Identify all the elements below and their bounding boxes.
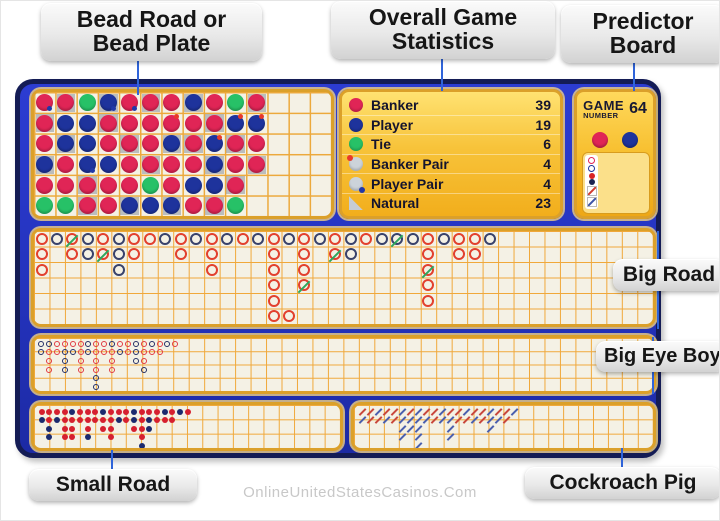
big-eye-player-circle	[46, 341, 52, 347]
small-road-banker-dot	[139, 417, 145, 423]
bead-banker	[206, 94, 223, 111]
cockroach-banker-slash	[407, 408, 415, 416]
big-eye-banker-circle	[93, 349, 99, 355]
overall-stats-label-line1: Overall Game	[339, 6, 547, 30]
banker-pair-icon	[349, 157, 363, 171]
tie-count: 6	[543, 136, 551, 152]
big-eye-banker-circle	[117, 341, 123, 347]
small-road-banker-dot	[62, 409, 68, 415]
cockroach-player-slash	[407, 425, 415, 433]
small-road-banker-dot	[85, 417, 91, 423]
small-road-player-dot	[146, 426, 152, 432]
big-road-banker-circle	[128, 233, 140, 245]
big-eye-banker-circle	[93, 367, 99, 373]
big-eye-banker-circle	[101, 349, 107, 355]
big-road-player-circle	[82, 233, 94, 245]
cockroach-banker-slash	[503, 416, 511, 424]
bead-road-label: Bead Road or Bead Plate	[41, 3, 262, 61]
bead-banker	[36, 177, 53, 194]
small-road-player-dot	[131, 409, 137, 415]
big-road-player-circle	[314, 233, 326, 245]
big-eye-banker-circle	[101, 341, 107, 347]
big-road-player-circle	[407, 233, 419, 245]
tie-slash	[422, 265, 435, 278]
big-road-banker-circle	[175, 233, 187, 245]
banker-count: 39	[535, 97, 551, 113]
banker-outcome-icon	[592, 132, 608, 148]
cockroach-player-slash	[399, 416, 407, 424]
big-road-banker-circle	[422, 233, 434, 245]
big-eye-player-circle	[149, 341, 155, 347]
small-road-banker-dot	[69, 434, 75, 440]
bead-banker	[163, 177, 180, 194]
big-road-player-circle	[345, 248, 357, 260]
bead-banker	[36, 115, 53, 132]
bead-player	[185, 94, 202, 111]
small-road-banker-dot	[123, 417, 129, 423]
big-eye-player-circle	[109, 341, 115, 347]
big-road-banker-circle	[298, 248, 310, 260]
big-eye-banker-circle	[62, 341, 68, 347]
small-road-banker-dot	[92, 417, 98, 423]
big-eye-banker-circle	[141, 358, 147, 364]
cockroach-banker-slash	[391, 408, 399, 416]
big-eye-player-circle	[133, 349, 139, 355]
small-road-dots	[34, 405, 340, 448]
small-road-banker-dot	[100, 426, 106, 432]
cockroach-player-slash	[487, 416, 495, 424]
big-eye-boy-circles	[34, 338, 653, 391]
baccarat-scoreboard-infographic: Bead Road or Bead Plate Overall Game Sta…	[0, 0, 720, 521]
big-road-banker-circle	[97, 248, 109, 260]
big-road-banker-circle	[469, 233, 481, 245]
connector-bead	[137, 59, 139, 95]
bead-banker	[227, 177, 244, 194]
big-road-banker-circle	[237, 233, 249, 245]
player-icon	[349, 118, 363, 132]
bead-player	[79, 115, 96, 132]
connector-predictor	[633, 59, 635, 91]
big-eye-banker-circle	[149, 349, 155, 355]
big-road-player-circle	[159, 233, 171, 245]
cockroach-player-slash	[511, 408, 519, 416]
small-road-banker-dot	[100, 417, 106, 423]
banker-pair-count: 4	[543, 156, 551, 172]
small-road-banker-dot	[62, 417, 68, 423]
small-road-player-dot	[162, 409, 168, 415]
small-road-player-dot	[39, 417, 45, 423]
tie-label: Tie	[371, 136, 535, 152]
bead-plate-beads	[34, 92, 331, 216]
bead-banker	[185, 135, 202, 152]
bead-banker	[79, 197, 96, 214]
cockroach-banker-slash	[383, 408, 391, 416]
bead-tie	[57, 197, 74, 214]
big-road-panel	[31, 228, 656, 327]
game-number-value: 64	[629, 100, 647, 118]
bead-banker	[248, 94, 265, 111]
bead-plate-panel	[31, 89, 334, 219]
big-road-banker-circle	[268, 248, 280, 260]
big-road-banker-circle	[469, 248, 481, 260]
stats-row-player: Player 19	[342, 115, 560, 135]
tie-slash	[97, 250, 110, 263]
big-eye-banker-circle	[78, 341, 84, 347]
stats-row-banker-pair: Banker Pair 4	[342, 154, 560, 174]
big-eye-banker-circle	[93, 341, 99, 347]
cockroach-pig-panel	[351, 402, 656, 451]
cockroach-banker-slash	[479, 408, 487, 416]
bead-player	[206, 156, 223, 173]
natural-count: 23	[535, 195, 551, 211]
bead-banker	[206, 197, 223, 214]
predictor-board-label-line1: Predictor	[569, 10, 717, 34]
small-road-banker-dot	[162, 417, 168, 423]
big-eye-banker-circle	[141, 341, 147, 347]
big-road-banker-circle	[329, 233, 341, 245]
natural-icon	[349, 196, 363, 210]
small-road-banker-dot	[85, 426, 91, 432]
small-road-banker-dot	[123, 409, 129, 415]
small-road-banker-dot	[139, 434, 145, 440]
small-road-label-text: Small Road	[37, 474, 189, 496]
small-road-banker-dot	[62, 434, 68, 440]
bead-banker	[121, 115, 138, 132]
cockroach-player-slash	[383, 416, 391, 424]
big-eye-banker-circle	[157, 341, 163, 347]
cockroach-player-slash	[399, 408, 407, 416]
tie-slash	[298, 281, 311, 294]
connector-stats	[441, 57, 443, 91]
big-road-banker-circle	[206, 248, 218, 260]
stats-row-natural: Natural 23	[342, 193, 560, 213]
bead-player	[79, 135, 96, 152]
small-road-player-dot	[146, 417, 152, 423]
big-eye-player-circle	[85, 341, 91, 347]
cockroach-banker-slash	[423, 408, 431, 416]
player-pair-icon	[349, 177, 363, 191]
small-road-banker-dot	[46, 417, 52, 423]
big-road-player-circle	[283, 233, 295, 245]
small-road-player-dot	[46, 426, 52, 432]
big-road-banker-circle	[268, 264, 280, 276]
big-road-player-circle	[51, 233, 63, 245]
small-road-banker-dot	[54, 409, 60, 415]
small-road-banker-dot	[77, 417, 83, 423]
big-eye-banker-circle	[93, 358, 99, 364]
cockroach-player-slash	[439, 408, 447, 416]
big-road-banker-circle	[144, 233, 156, 245]
player-outcome-icon	[622, 132, 638, 148]
small-road-banker-dot	[146, 409, 152, 415]
big-road-banker-circle	[360, 233, 372, 245]
small-road-banker-dot	[185, 409, 191, 415]
bead-banker	[100, 197, 117, 214]
big-road-banker-circle	[268, 279, 280, 291]
big-eye-banker-circle	[54, 349, 60, 355]
small-road-banker-dot	[46, 409, 52, 415]
bead-banker	[100, 115, 117, 132]
cockroach-player-slash	[399, 425, 407, 433]
cockroach-banker-slash	[391, 416, 399, 424]
cockroach-banker-slash	[495, 408, 503, 416]
bead-banker	[142, 156, 159, 173]
bead-banker	[100, 177, 117, 194]
bead-player	[57, 115, 74, 132]
big-eye-banker-circle	[125, 341, 131, 347]
bead-road-label-line1: Bead Road or	[49, 8, 254, 32]
player-pair-dot	[132, 106, 137, 111]
big-road-player-circle	[391, 233, 403, 245]
big-eye-player-circle	[70, 349, 76, 355]
big-road-player-circle	[438, 233, 450, 245]
cockroach-player-slash	[495, 416, 503, 424]
big-eye-boy-panel	[31, 335, 656, 394]
cockroach-player-slash	[399, 433, 407, 441]
small-road-banker-dot	[62, 426, 68, 432]
cockroach-player-slash	[447, 416, 455, 424]
big-eye-banker-circle	[46, 349, 52, 355]
big-road-banker-circle	[268, 233, 280, 245]
small-road-banker-dot	[77, 409, 83, 415]
bead-banker	[57, 156, 74, 173]
bead-player	[36, 156, 53, 173]
banker-slash-icon	[587, 186, 597, 196]
cockroach-player-slash	[487, 425, 495, 433]
small-road-banker-dot	[139, 409, 145, 415]
bead-banker	[121, 177, 138, 194]
small-road-player-dot	[116, 417, 122, 423]
player-dot-icon	[589, 179, 595, 185]
cockroach-banker-slash	[471, 408, 479, 416]
bead-player	[121, 197, 138, 214]
big-eye-player-circle	[133, 341, 139, 347]
small-road-banker-dot	[131, 426, 137, 432]
cockroach-player-slash	[415, 408, 423, 416]
player-count: 19	[535, 117, 551, 133]
big-road-player-circle	[190, 233, 202, 245]
big-eye-player-circle	[93, 375, 99, 381]
small-road-player-dot	[177, 409, 183, 415]
predictor-board-label: Predictor Board	[561, 5, 720, 63]
big-eye-player-circle	[164, 341, 170, 347]
big-eye-banker-circle	[78, 367, 84, 373]
big-road-player-circle	[484, 233, 496, 245]
cockroach-pig-label-text: Cockroach Pig	[533, 472, 713, 494]
cockroach-banker-slash	[503, 408, 511, 416]
overall-stats-label-line2: Statistics	[339, 30, 547, 54]
cockroach-banker-slash	[463, 416, 471, 424]
bead-banker	[185, 197, 202, 214]
big-eye-banker-circle	[54, 341, 60, 347]
bead-player	[206, 177, 223, 194]
small-road-player-dot	[69, 409, 75, 415]
cockroach-banker-slash	[367, 416, 375, 424]
stats-row-tie: Tie 6	[342, 134, 560, 154]
bead-banker	[206, 115, 223, 132]
big-eye-player-circle	[62, 349, 68, 355]
bead-banker	[185, 115, 202, 132]
game-number-word2: NUMBER	[583, 112, 624, 120]
big-eye-banker-circle	[109, 358, 115, 364]
big-road-banker-circle	[453, 248, 465, 260]
small-road-banker-dot	[108, 426, 114, 432]
natural-label: Natural	[371, 195, 527, 211]
banker-dot-icon	[589, 173, 595, 179]
predictor-board-label-line2: Board	[569, 34, 717, 58]
small-road-banker-dot	[139, 426, 145, 432]
cockroach-player-slash	[415, 416, 423, 424]
game-number-title: GAME NUMBER 64	[577, 99, 653, 120]
big-road-banker-circle	[206, 233, 218, 245]
big-road-player-circle	[252, 233, 264, 245]
bead-tie	[36, 197, 53, 214]
banker-pair-dot	[217, 135, 222, 140]
big-eye-banker-circle	[172, 341, 178, 347]
big-eye-banker-circle	[157, 349, 163, 355]
cockroach-player-slash	[415, 433, 423, 441]
cockroach-banker-slash	[359, 408, 367, 416]
player-outline-circle-icon	[588, 165, 595, 172]
small-road-player-dot	[100, 409, 106, 415]
big-eye-player-circle	[93, 384, 99, 390]
cockroach-banker-slash	[431, 408, 439, 416]
big-eye-player-circle	[141, 367, 147, 373]
cockroach-banker-slash	[431, 416, 439, 424]
cockroach-player-slash	[375, 408, 383, 416]
bead-banker	[79, 177, 96, 194]
cockroach-banker-slash	[479, 416, 487, 424]
big-road-label-text: Big Road	[621, 264, 717, 286]
bead-banker	[121, 156, 138, 173]
player-pair-dot	[47, 106, 52, 111]
big-eye-player-circle	[38, 341, 44, 347]
big-eye-banker-circle	[70, 341, 76, 347]
player-pair-dot	[111, 106, 116, 111]
big-road-banker-circle	[453, 233, 465, 245]
big-eye-player-circle	[62, 358, 68, 364]
cockroach-player-slash	[407, 416, 415, 424]
cockroach-player-slash	[439, 416, 447, 424]
banker-icon	[349, 98, 363, 112]
cockroach-banker-slash	[455, 408, 463, 416]
small-road-banker-dot	[39, 409, 45, 415]
predictor-inset	[582, 152, 650, 214]
cockroach-player-slash	[487, 408, 495, 416]
big-eye-banker-circle	[78, 349, 84, 355]
small-road-label: Small Road	[29, 469, 197, 501]
bead-player	[100, 156, 117, 173]
big-road-circles	[34, 231, 653, 324]
big-eye-banker-circle	[78, 358, 84, 364]
stats-row-banker: Banker 39	[342, 96, 560, 115]
big-eye-banker-circle	[125, 349, 131, 355]
big-road-banker-circle	[422, 248, 434, 260]
connector-cockroach-pig	[621, 448, 623, 468]
big-road-banker-circle	[283, 310, 295, 322]
big-road-banker-circle	[298, 279, 310, 291]
bead-player	[142, 197, 159, 214]
big-road-player-circle	[345, 233, 357, 245]
big-eye-banker-circle	[141, 349, 147, 355]
small-road-banker-dot	[108, 417, 114, 423]
stats-row-player-pair: Player Pair 4	[342, 173, 560, 193]
bead-player	[185, 177, 202, 194]
bead-banker	[142, 115, 159, 132]
small-road-banker-dot	[92, 409, 98, 415]
big-eye-player-circle	[85, 349, 91, 355]
bead-banker	[227, 156, 244, 173]
cockroach-player-slash	[447, 433, 455, 441]
big-road-player-circle	[221, 233, 233, 245]
cockroach-player-slash	[415, 442, 423, 448]
big-road-banker-circle	[66, 248, 78, 260]
small-road-player-dot	[46, 434, 52, 440]
banker-outline-circle-icon	[588, 157, 595, 164]
bead-tie	[142, 177, 159, 194]
big-eye-player-circle	[117, 349, 123, 355]
big-road-banker-circle	[97, 233, 109, 245]
small-road-banker-dot	[154, 409, 160, 415]
big-eye-boy-label-text: Big Eye Boy	[604, 346, 718, 367]
bead-banker	[57, 177, 74, 194]
bead-road-label-line2: Bead Plate	[49, 32, 254, 56]
bead-banker	[121, 135, 138, 152]
cockroach-player-slash	[471, 416, 479, 424]
tie-icon	[349, 137, 363, 151]
player-slash-icon	[587, 197, 597, 207]
bead-banker	[248, 135, 265, 152]
small-road-banker-dot	[69, 426, 75, 432]
big-road-banker-circle	[422, 279, 434, 291]
big-road-player-circle	[113, 233, 125, 245]
cockroach-banker-slash	[447, 408, 455, 416]
big-eye-player-circle	[38, 349, 44, 355]
player-pair-dot	[90, 168, 95, 173]
big-eye-banker-circle	[46, 358, 52, 364]
bead-tie	[79, 94, 96, 111]
big-eye-player-circle	[133, 358, 139, 364]
predictor-outcome-circles	[577, 132, 653, 148]
big-road-player-circle	[113, 264, 125, 276]
big-road-banker-circle	[298, 264, 310, 276]
small-road-banker-dot	[154, 417, 160, 423]
big-eye-player-circle	[62, 367, 68, 373]
big-road-banker-circle	[268, 310, 280, 322]
big-road-banker-circle	[36, 248, 48, 260]
cockroach-player-slash	[423, 416, 431, 424]
big-eye-banker-circle	[109, 367, 115, 373]
big-road-banker-circle	[175, 248, 187, 260]
big-road-player-circle	[82, 248, 94, 260]
small-road-banker-dot	[116, 409, 122, 415]
banker-pair-label: Banker Pair	[371, 156, 535, 172]
player-label: Player	[371, 117, 527, 133]
bead-tie	[227, 197, 244, 214]
connector-small-road	[111, 450, 113, 470]
bead-banker	[142, 135, 159, 152]
small-road-player-dot	[85, 434, 91, 440]
big-road-banker-circle	[206, 264, 218, 276]
tie-slash	[329, 250, 342, 263]
statistics-rows: Banker 39 Player 19 Tie 6 Banker Pair 4 …	[342, 92, 560, 213]
predictor-panel: GAME NUMBER 64	[574, 89, 656, 219]
bead-banker	[100, 135, 117, 152]
statistics-panel: Banker 39 Player 19 Tie 6 Banker Pair 4 …	[339, 89, 563, 219]
big-road-banker-circle	[128, 248, 140, 260]
bead-banker	[36, 135, 53, 152]
big-road-banker-circle	[36, 233, 48, 245]
